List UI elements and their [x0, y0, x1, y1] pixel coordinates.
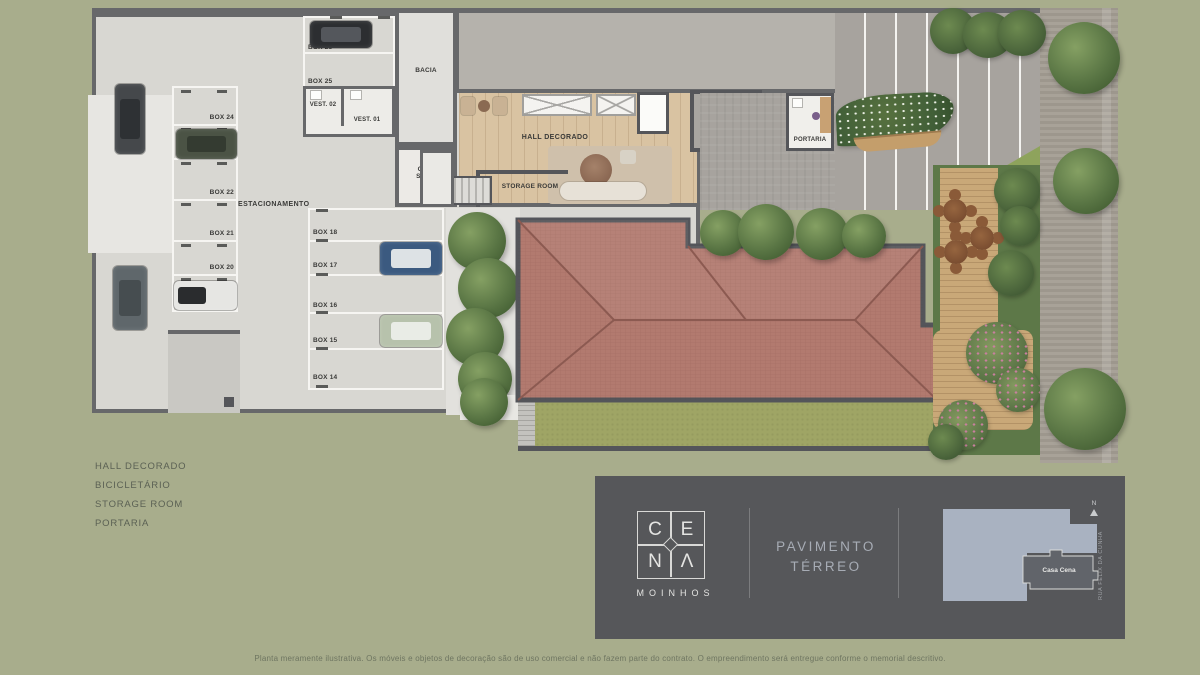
stall-label: BOX 18 — [313, 229, 337, 236]
structural-column — [224, 397, 234, 407]
upper-slab — [455, 13, 835, 93]
flowering-bush — [996, 368, 1040, 412]
parked-car-dark-gray — [115, 84, 145, 154]
floor-title-line1: PAVIMENTO — [760, 537, 892, 557]
roof-planter-tree — [738, 204, 794, 260]
lawn-steps — [518, 402, 535, 446]
logo-letter-a: Λ — [670, 544, 704, 578]
bacia-room — [395, 13, 457, 146]
vest-fixture — [310, 90, 322, 100]
street-name: RUA FÉLIX DA CUNHA — [1099, 520, 1105, 600]
cena-logo: C E N Λ — [637, 511, 705, 579]
patio-table — [944, 240, 968, 264]
wheel-stop — [316, 347, 328, 350]
stall-label: BOX 14 — [313, 374, 337, 381]
vest01-label: VEST. 01 — [342, 117, 392, 124]
stall-divider — [172, 124, 238, 126]
stall-label: BOX 16 — [313, 302, 337, 309]
garden-bush — [928, 424, 964, 460]
north-arrow-icon — [1090, 509, 1098, 516]
legend-item-storage: STORAGE ROOM — [95, 500, 183, 510]
patio-table — [970, 226, 994, 250]
parked-car-gray — [113, 266, 147, 330]
stall-divider — [172, 199, 238, 201]
patio-table — [943, 199, 967, 223]
bacia-label: BACIA — [395, 67, 457, 74]
stall-label: BOX 21 — [174, 230, 234, 237]
wheel-stop — [316, 209, 328, 212]
wheel-stop — [378, 16, 390, 19]
elevator — [637, 92, 669, 134]
portaria-desk — [820, 97, 831, 133]
parked-car-white — [174, 281, 237, 310]
wheel-stop — [330, 16, 342, 19]
portaria-label: PORTARIA — [786, 137, 834, 144]
wheel-stop-pair — [181, 244, 227, 247]
site-minimap: Casa Cena — [925, 498, 1110, 618]
vest02-label: VEST. 02 — [303, 102, 343, 109]
wheel-stop — [316, 385, 328, 388]
stall-divider — [308, 348, 444, 350]
estacionamento-label: ESTACIONAMENTO — [238, 201, 309, 209]
legend-item-hall: HALL DECORADO — [95, 462, 186, 472]
garden-bush — [988, 250, 1034, 296]
parked-car-green-suv — [176, 129, 237, 159]
portaria-fixture — [792, 98, 803, 108]
parked-car-black — [310, 21, 372, 48]
stall-label: BOX 22 — [174, 189, 234, 196]
stall-label: BOX 24 — [174, 114, 234, 121]
stall-divider — [172, 240, 238, 242]
north-label: N — [1088, 501, 1100, 508]
wheel-stop — [316, 239, 328, 242]
minimap-unit-label: Casa Cena — [1042, 567, 1076, 574]
floor-plan-page: BACIA BOX 26 BOX 25 VEST. 02 VEST. 01 CI… — [0, 0, 1200, 675]
armchair — [461, 97, 475, 115]
stall-label: BOX 15 — [313, 337, 337, 344]
roof-planter-tree — [796, 208, 848, 260]
stall-label: BOX 25 — [308, 78, 332, 85]
portaria-chair — [812, 112, 820, 120]
wheel-stop-pair — [181, 90, 227, 93]
sofa — [560, 182, 646, 200]
panel-divider — [898, 508, 899, 598]
lawn — [535, 402, 935, 446]
hedge — [998, 10, 1046, 56]
stall-divider — [308, 312, 444, 314]
wheel-stop — [316, 273, 328, 276]
skylight-panel — [522, 94, 592, 116]
hall-label: HALL DECORADO — [505, 134, 605, 142]
lounge-chair — [620, 150, 636, 164]
service-room — [420, 150, 454, 207]
floor-title: PAVIMENTO TÉRREO — [760, 537, 892, 578]
stall-label: BOX 20 — [174, 264, 234, 271]
armchair — [493, 97, 507, 115]
skylight-panel — [596, 94, 636, 116]
disclaimer-text: Planta meramente ilustrativa. Os móveis … — [0, 655, 1200, 663]
stairs — [452, 176, 492, 205]
legend-item-bicicletario: BICICLETÁRIO — [95, 481, 171, 491]
stall-divider — [172, 274, 238, 276]
logo-subtitle: MOINHOS — [627, 589, 719, 598]
roof-planter-tree — [842, 214, 886, 258]
side-table — [478, 100, 490, 112]
garden-bush — [1000, 206, 1040, 246]
storage-wall — [476, 170, 568, 174]
parked-car-blue — [380, 242, 442, 275]
street-tree — [1048, 22, 1120, 94]
street-tree — [1053, 148, 1119, 214]
panel-divider — [749, 508, 750, 598]
street-tree — [1044, 368, 1126, 450]
parked-car-sage — [380, 315, 442, 347]
legend-item-portaria: PORTARIA — [95, 519, 149, 529]
wheel-stop — [316, 311, 328, 314]
wheel-stop-pair — [181, 203, 227, 206]
stall-label: BOX 17 — [313, 262, 337, 269]
storage-label: STORAGE ROOM — [490, 183, 570, 190]
wheel-stop-pair — [181, 162, 227, 165]
vest-fixture — [350, 90, 362, 100]
floor-title-line2: TÉRREO — [760, 557, 892, 577]
stall-divider — [303, 52, 395, 54]
